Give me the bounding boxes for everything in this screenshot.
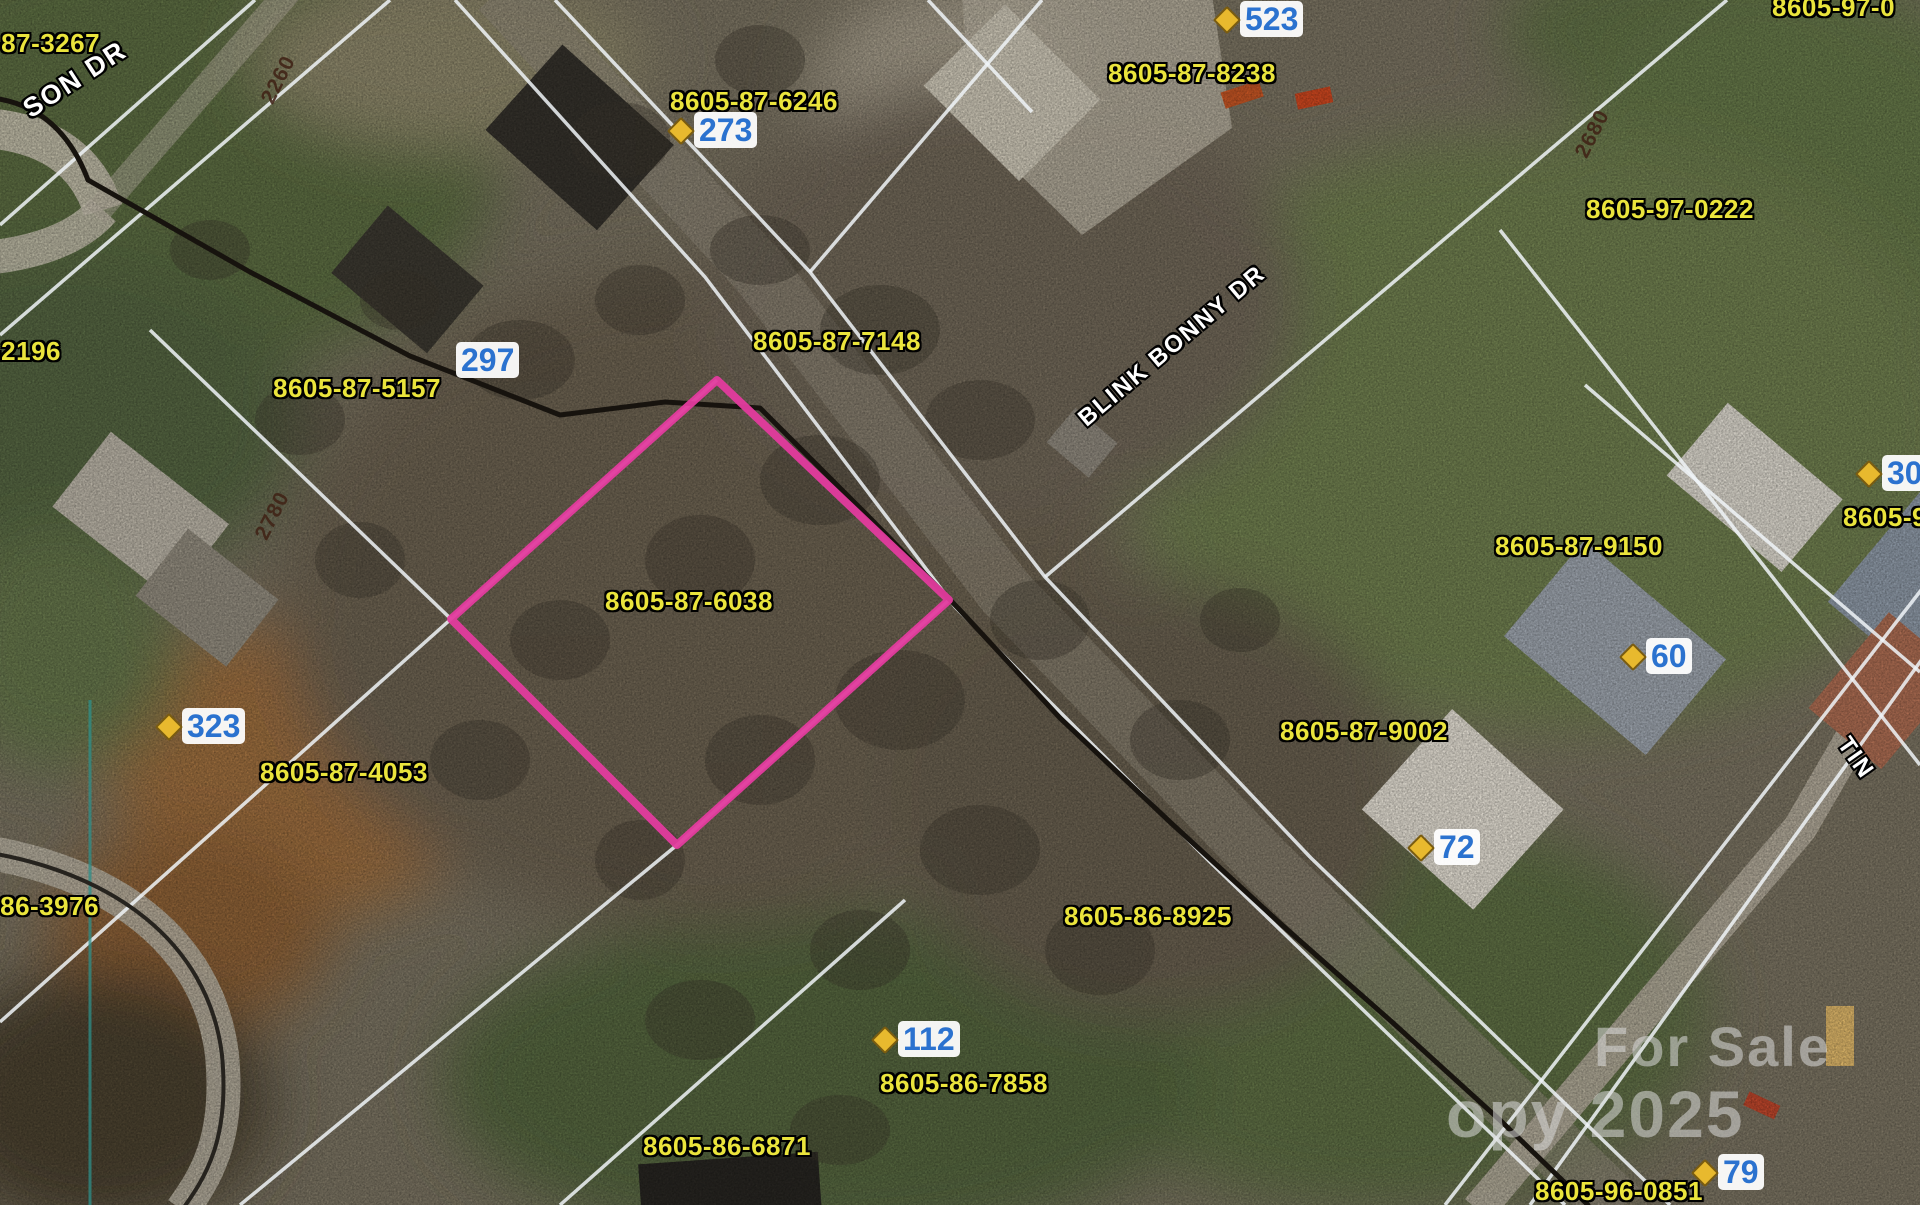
address-point: 323 [182,708,245,744]
address-point: 30 [1882,455,1920,491]
address-point: 72 [1434,829,1480,865]
address-point: 60 [1646,638,1692,674]
address-point: 523 [1240,1,1303,37]
address-point: 273 [694,112,757,148]
parcel-id-label-highlighted: 8605-87-6038 [605,586,773,617]
address-number: 297 [456,342,519,378]
parcel-id-label: 5-86-3976 [0,891,99,922]
parcel-id-label: 8605-9 [1843,502,1920,533]
address-number: 273 [694,112,757,148]
address-number: 30 [1882,455,1920,491]
address-number: 523 [1240,1,1303,37]
parcel-id-label: 8605-87-4053 [260,757,428,788]
watermark-year: opy 2025 [1446,1076,1745,1152]
watermark-for-sale: For Sale [1594,1014,1831,1079]
parcel-id-label: 8605-86-7858 [880,1068,1048,1099]
parcel-id-label: 8605-87-8238 [1108,58,1276,89]
parcel-id-label: 8605-86-8925 [1064,901,1232,932]
address-point: 297 [456,342,519,378]
parcel-id-label: -2196 [0,336,61,367]
parcel-id-label: 8605-86-6871 [643,1131,811,1162]
address-number: 323 [182,708,245,744]
parcel-id-label: 8605-87-5157 [273,373,441,404]
parcel-id-label: 8605-87-9002 [1280,716,1448,747]
address-number: 79 [1718,1154,1764,1190]
address-point: 79 [1718,1154,1764,1190]
aerial-parcel-map: -87-3267 8605-87-6246 8605-87-8238 8605-… [0,0,1920,1205]
address-number: 112 [898,1021,960,1057]
parcel-id-label: 8605-97-0222 [1586,194,1754,225]
address-number: 60 [1646,638,1692,674]
parcel-id-label: 8605-87-9150 [1495,531,1663,562]
parcel-id-label: 8605-96-0851 [1535,1176,1703,1205]
address-point: 112 [898,1021,960,1057]
parcel-id-label: 8605-87-7148 [753,326,921,357]
parcel-id-label: 8605-97-0 [1772,0,1895,23]
address-number: 72 [1434,829,1480,865]
